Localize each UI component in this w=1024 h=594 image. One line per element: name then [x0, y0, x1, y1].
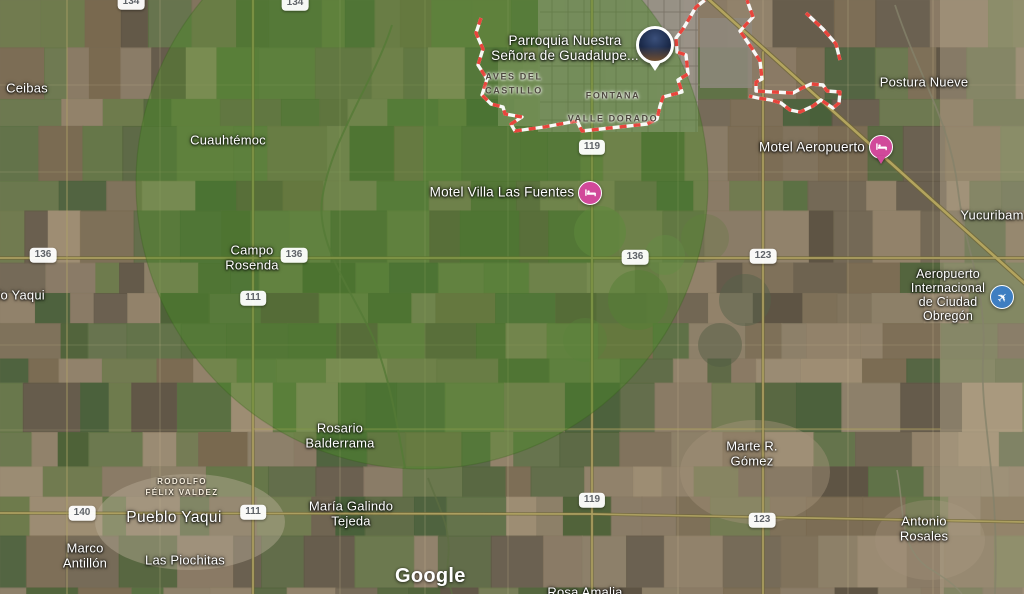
motel-aeropuerto-marker[interactable] [869, 135, 893, 159]
route-shield-119: 119 [579, 140, 605, 155]
place-label-las-piochitas[interactable]: Las Piochitas [145, 552, 225, 567]
route-shield-136: 136 [622, 250, 649, 265]
neighborhood-label-valle-dorado: VALLE DORADO [568, 112, 659, 126]
place-label-pueblo-yaqui[interactable]: Pueblo Yaqui [126, 509, 222, 527]
place-label-postura-nueve[interactable]: Postura Nueve [880, 74, 969, 89]
route-shield-119: 119 [579, 493, 605, 508]
place-label-cuauhtemoc[interactable]: Cuauhtémoc [190, 132, 266, 147]
route-shield-134: 134 [282, 0, 309, 10]
poi-label-motel-villa-las-fuentes[interactable]: Motel Villa Las Fuentes [430, 186, 575, 201]
place-label-rio-yaqui[interactable]: Río Yaqui [0, 287, 45, 302]
poi-label-aeropuerto-obregon[interactable]: Aeropuerto Internacional de Ciudad Obreg… [911, 267, 985, 323]
place-label-rosario-balderrama[interactable]: Rosario Balderrama [305, 421, 374, 452]
airplane-icon: ✈ [994, 289, 1011, 306]
route-shield-136: 136 [30, 248, 57, 263]
route-shield-140: 140 [69, 506, 96, 521]
place-label-antonio-rosales[interactable]: Antonio Rosales [900, 514, 948, 545]
google-logo[interactable]: Google [395, 565, 466, 588]
bed-icon [875, 142, 888, 152]
route-shield-123: 123 [749, 513, 776, 528]
place-label-marte-r-gomez[interactable]: Marte R. Gómez [726, 439, 777, 470]
route-shield-111: 111 [240, 291, 266, 306]
neighborhood-label-fontana: FONTANA [586, 89, 641, 103]
neighborhood-label-aves-del-castillo: AVES DEL CASTILLO [485, 71, 543, 98]
route-shield-111: 111 [240, 505, 266, 520]
place-label-marco-antillon[interactable]: Marco Antillón [63, 541, 107, 572]
place-label-ceibas[interactable]: Ceibas [6, 80, 48, 95]
photo-marker-parroquia[interactable] [636, 26, 674, 64]
map-canvas[interactable]: Ceibas Cuauhtémoc Campo Rosenda Río Yaqu… [0, 0, 1024, 594]
poi-label-motel-aeropuerto[interactable]: Motel Aeropuerto [759, 141, 865, 156]
route-shield-136: 136 [281, 248, 308, 263]
route-shield-134: 134 [118, 0, 145, 9]
marker-tail [649, 62, 661, 71]
motel-villa-marker[interactable] [578, 181, 602, 205]
route-shield-123: 123 [750, 249, 777, 264]
place-label-yucuribam[interactable]: Yucuribam [960, 207, 1023, 222]
airport-marker[interactable]: ✈ [990, 285, 1014, 309]
marker-tail [876, 156, 886, 164]
place-label-campo-rosenda[interactable]: Campo Rosenda [225, 243, 278, 274]
place-label-maria-galindo-tejeda[interactable]: María Galindo Tejeda [309, 499, 393, 530]
bed-icon [584, 188, 597, 198]
place-label-rodolfo-felix-valdez: RODOLFO FÉLIX VALDEZ [145, 476, 218, 498]
place-label-rosa-amalia[interactable]: Rosa Amalia [547, 584, 622, 594]
poi-label-parroquia-guadalupe[interactable]: Parroquia Nuestra Señora de Guadalupe... [491, 34, 639, 64]
